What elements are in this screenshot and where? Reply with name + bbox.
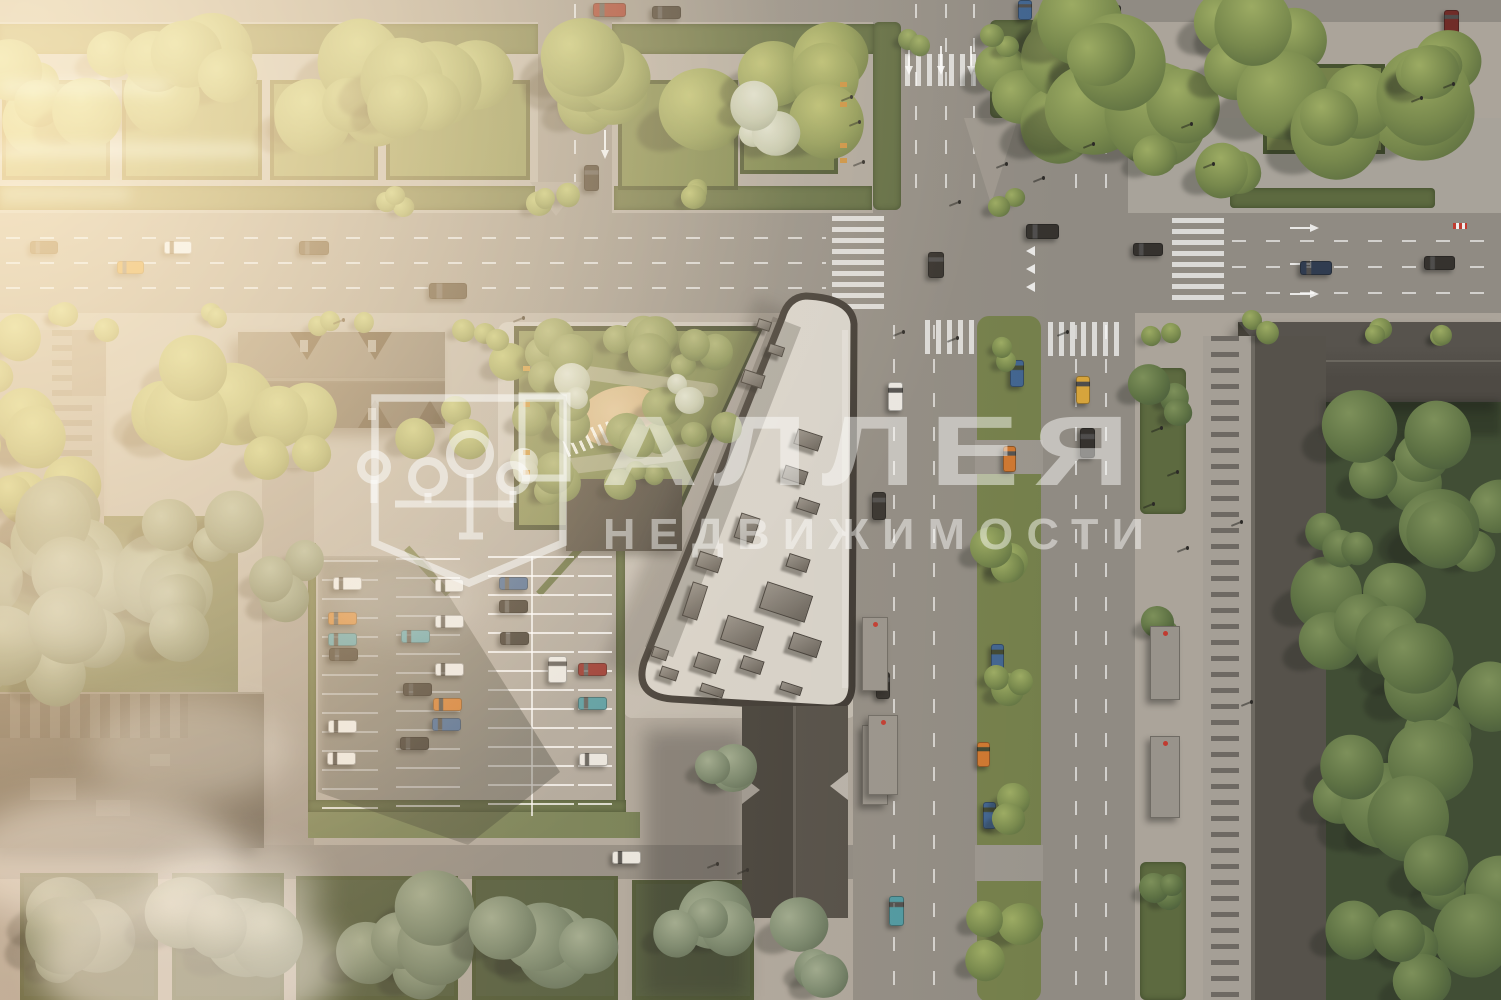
tree-shadow <box>620 467 638 482</box>
tree-shadow <box>1178 160 1227 200</box>
tree <box>15 888 109 983</box>
playground-sand <box>571 377 668 454</box>
tree-shadow <box>446 917 508 967</box>
roof-unit-shadow <box>751 322 767 336</box>
tree <box>266 373 347 455</box>
tree <box>512 459 538 484</box>
tree-shadow <box>478 336 499 353</box>
tree <box>572 53 652 131</box>
car <box>30 241 58 254</box>
tree-shadow <box>108 402 171 453</box>
tree-shadow <box>1405 879 1447 913</box>
tree <box>1419 880 1501 990</box>
car <box>1018 0 1032 20</box>
tree-shadow <box>1361 325 1382 342</box>
tree-shadow <box>768 65 831 116</box>
lower-wing-ridge <box>793 706 796 918</box>
lane-arrow <box>604 130 606 150</box>
tree-shadow <box>995 111 1063 166</box>
tree-shadow <box>714 63 778 115</box>
traffic-sign <box>1453 223 1467 229</box>
tree <box>1140 64 1226 150</box>
pedestrian-shadow <box>1443 83 1453 89</box>
tree-shadow <box>116 402 193 464</box>
roof-unit-shadow <box>654 669 675 685</box>
tree <box>472 320 499 346</box>
house-ridge <box>238 378 445 381</box>
tree <box>1318 386 1401 467</box>
pedestrian <box>1186 546 1189 550</box>
lane-arrow-head <box>1310 290 1319 298</box>
tree-shadow <box>0 425 40 470</box>
pergola-slats <box>561 417 626 457</box>
tree <box>979 23 1006 49</box>
lane-arrow <box>574 100 576 120</box>
hedge <box>616 543 625 809</box>
pedestrian-shadow <box>1057 331 1067 337</box>
left-building-windows <box>52 330 92 560</box>
tree-shadow <box>991 43 1073 109</box>
garden-plot <box>386 80 530 180</box>
tree <box>1343 594 1434 686</box>
tree <box>550 383 596 427</box>
industrial-vent <box>96 800 130 816</box>
lane-dashes <box>6 237 826 239</box>
roof-unit-shadow <box>646 650 665 665</box>
tree-shadow <box>371 932 442 989</box>
roof-unit-shadow <box>728 517 755 548</box>
tree <box>988 671 1026 709</box>
tree-shadow <box>49 570 113 622</box>
tree-shadow <box>979 554 1012 581</box>
parking-stalls <box>322 560 378 810</box>
tree-shadow <box>980 684 1011 709</box>
tree <box>1387 919 1441 972</box>
tree <box>289 432 333 475</box>
parking-tree-shadow <box>318 556 568 846</box>
tree <box>306 314 330 338</box>
car <box>983 802 996 829</box>
tree <box>1364 36 1483 156</box>
tree-shadow <box>986 793 1016 817</box>
tree-shadow <box>630 95 710 160</box>
lane-arrow-head <box>937 66 945 75</box>
tree-shadow <box>476 355 512 385</box>
tree <box>138 369 236 467</box>
shelter-marker <box>873 622 878 627</box>
parked-car <box>327 752 356 765</box>
industrial-skylights <box>0 694 188 738</box>
tree <box>462 888 544 967</box>
bus-shelter <box>868 715 898 795</box>
tree-shadow <box>386 204 406 220</box>
tree <box>687 181 709 202</box>
tree-shadow <box>0 631 11 689</box>
tree <box>16 636 94 715</box>
tree-shadow <box>0 95 42 130</box>
shelter-marker <box>1163 631 1168 636</box>
tree <box>277 532 331 587</box>
lane-arrow-head <box>601 150 609 159</box>
tree <box>1387 423 1457 491</box>
tree-shadow <box>15 545 91 606</box>
tree <box>1211 146 1265 199</box>
tree-shadow <box>501 412 533 438</box>
yield-triangle <box>1026 264 1035 274</box>
tree <box>1278 545 1375 643</box>
lower-wing-gable <box>742 776 760 804</box>
tree-shadow <box>558 394 578 410</box>
roof-unit <box>788 632 822 658</box>
pedestrian <box>1152 502 1155 506</box>
tree <box>527 361 563 396</box>
tree-shadow <box>520 331 558 362</box>
tree <box>1032 0 1129 71</box>
tree <box>1460 470 1501 543</box>
lawn <box>1322 398 1501 1000</box>
tree <box>705 742 764 799</box>
tree <box>672 384 706 417</box>
median-gap <box>975 845 1043 881</box>
tree-shadow <box>382 430 419 460</box>
hedge <box>820 360 854 408</box>
tree-shadow <box>201 314 219 329</box>
pedestrian <box>522 316 525 320</box>
tree-shadow <box>71 47 116 84</box>
tree-shadow <box>528 476 565 506</box>
tree-shadow <box>633 432 662 456</box>
tree <box>994 33 1021 60</box>
tree-shadow <box>166 388 242 449</box>
tree-shadow <box>83 562 166 629</box>
tree <box>242 549 301 609</box>
tree <box>1056 10 1146 98</box>
industrial-building <box>0 692 264 848</box>
car <box>889 896 904 926</box>
tree <box>641 462 667 488</box>
tree-shadow <box>593 426 630 456</box>
tree <box>1138 872 1170 904</box>
tree <box>601 408 651 457</box>
tree <box>1386 946 1458 1000</box>
pedestrian <box>1160 426 1163 430</box>
tree <box>1399 494 1480 575</box>
tree <box>391 902 480 991</box>
tree <box>1344 447 1404 505</box>
tree-shadow <box>303 95 353 135</box>
tree <box>781 33 869 122</box>
tree-shadow <box>902 41 921 57</box>
tree <box>1405 19 1491 103</box>
pedestrian <box>956 336 959 340</box>
tree-shadow <box>669 338 698 361</box>
lane-dashes <box>973 4 975 204</box>
lane-dashes <box>1232 266 1496 268</box>
hedge <box>536 546 583 597</box>
parked-car <box>499 577 528 590</box>
tree-shadow <box>1121 93 1190 148</box>
tree <box>1363 324 1386 346</box>
tree <box>189 38 265 112</box>
flare-streak <box>0 190 130 198</box>
parked-car <box>400 737 429 750</box>
roof-unit-shadow <box>783 636 817 662</box>
parking-stall-line <box>531 556 533 816</box>
tree <box>395 68 465 136</box>
tree <box>1293 606 1366 677</box>
tree <box>1010 78 1104 173</box>
tree-shadow <box>0 921 69 977</box>
roof-unit-shadow <box>780 557 805 577</box>
tree <box>1431 324 1454 347</box>
tree <box>302 5 418 123</box>
lane-dashes <box>893 325 895 990</box>
tree-shadow <box>1382 63 1436 106</box>
tree-shadow <box>983 917 1025 951</box>
lane-arrow <box>970 46 972 66</box>
roof-unit <box>682 581 708 620</box>
tree-shadow <box>1008 7 1088 71</box>
tree-shadow <box>1383 522 1445 572</box>
roof-unit-shadow <box>735 373 760 393</box>
zebra-crossing <box>551 54 611 86</box>
tree <box>625 460 647 481</box>
tree <box>46 303 70 327</box>
tree <box>0 356 17 397</box>
tree <box>0 637 10 693</box>
tree <box>344 23 459 139</box>
tree-shadow <box>516 372 549 398</box>
roof-unit <box>767 343 785 357</box>
tree-shadow <box>0 502 66 563</box>
tree-shadow <box>370 198 388 213</box>
lane-dashes <box>1232 292 1496 294</box>
gabled-house <box>238 332 445 428</box>
roof-unit <box>785 553 810 573</box>
tree-shadow <box>1365 472 1418 515</box>
tree <box>1061 4 1177 120</box>
tree <box>1393 35 1468 108</box>
roof-unit-shadow <box>715 619 759 655</box>
pedestrian-shadow <box>1181 123 1191 129</box>
tree <box>329 63 423 157</box>
ground-patch <box>853 313 1135 373</box>
tree-shadow <box>1358 332 1376 347</box>
tree-shadow <box>435 432 472 462</box>
ground-patch <box>262 468 314 848</box>
tree <box>52 892 141 978</box>
tree-shadow <box>373 959 426 1000</box>
tree-shadow <box>7 559 73 613</box>
tree-shadow <box>1266 580 1332 634</box>
tree <box>990 800 1028 837</box>
tree <box>667 349 699 380</box>
grass-verge <box>308 812 640 838</box>
tree <box>1007 0 1124 113</box>
tree-shadow <box>1294 789 1345 830</box>
tree <box>996 782 1031 816</box>
tree <box>1371 908 1426 963</box>
tree-shadow <box>525 487 550 507</box>
bench <box>840 102 847 107</box>
zebra-crossing <box>1172 218 1224 300</box>
tree-shadow <box>332 64 408 126</box>
tree <box>1140 325 1163 348</box>
tree-shadow <box>1381 66 1421 98</box>
avenue-median <box>977 316 1041 1000</box>
tree <box>1361 561 1428 627</box>
tree-shadow <box>1436 544 1477 577</box>
tree-shadow <box>44 310 68 329</box>
tree <box>1314 729 1389 805</box>
tree-shadow <box>1155 408 1181 429</box>
tree-shadow <box>1374 973 1427 1000</box>
car <box>1010 360 1024 387</box>
tree-shadow <box>1205 80 1291 149</box>
pedestrian-shadow <box>947 337 957 343</box>
tree <box>510 448 538 476</box>
parked-car <box>578 697 607 710</box>
tree-shadow <box>501 457 527 478</box>
tree-shadow <box>234 570 275 603</box>
pedestrian <box>1212 162 1215 166</box>
tree <box>731 33 815 115</box>
industrial-vent <box>150 754 170 766</box>
facade-windows <box>1211 336 1239 1000</box>
roof-garden-border <box>514 326 768 530</box>
hedge <box>990 20 1046 118</box>
tree-shadow <box>1306 919 1358 961</box>
parking-stalls <box>396 558 460 814</box>
tree <box>795 948 853 1000</box>
roof-unit <box>781 465 808 486</box>
tree <box>111 46 211 147</box>
tree <box>3 410 69 474</box>
tree <box>274 78 349 151</box>
car <box>429 283 467 299</box>
tree-shadow <box>1333 468 1378 504</box>
pedestrian-shadow <box>1083 143 1093 149</box>
roof-unit <box>793 428 823 451</box>
tree-shadow <box>537 93 591 136</box>
tree <box>983 664 1010 690</box>
tree <box>554 914 621 979</box>
tree-shadow <box>1408 59 1445 89</box>
tree-shadow <box>229 450 271 484</box>
pedestrian <box>716 862 719 866</box>
car <box>977 742 990 767</box>
tree <box>745 104 806 164</box>
tree <box>763 889 836 960</box>
tree <box>992 348 1019 376</box>
tree <box>679 182 709 211</box>
tree-shadow <box>177 924 251 984</box>
tree <box>501 893 609 1000</box>
tree <box>531 315 579 361</box>
tree-shadow <box>683 918 733 959</box>
tree <box>523 187 556 219</box>
hedge <box>308 543 316 809</box>
tree-shadow <box>1248 328 1269 345</box>
pedestrian <box>1066 330 1069 334</box>
tree <box>1156 618 1181 643</box>
tree <box>1351 762 1464 876</box>
roof-garden <box>519 331 763 525</box>
tree-shadow <box>490 932 562 990</box>
garden-path <box>529 358 719 398</box>
tree-shadow <box>653 904 721 959</box>
tree <box>510 399 549 438</box>
tree <box>694 749 731 785</box>
tree <box>177 885 257 966</box>
roof-unit-shadow <box>688 656 716 679</box>
roof-unit <box>659 665 680 681</box>
garden-path <box>544 441 715 478</box>
tree-shadow <box>20 954 60 986</box>
tree-shadow <box>1342 582 1400 629</box>
parked-car <box>435 579 464 592</box>
tree <box>696 896 761 961</box>
tree-shadow <box>956 540 994 571</box>
tree-shadow <box>1201 165 1243 199</box>
tree <box>539 461 583 505</box>
tree <box>318 74 379 135</box>
tree-shadow <box>178 66 232 110</box>
tree-shadow <box>628 400 666 430</box>
tree <box>148 602 210 663</box>
tree <box>1367 315 1394 341</box>
pedestrian <box>1250 700 1253 704</box>
lane-dashes <box>1232 240 1496 242</box>
tree-shadow <box>951 953 988 983</box>
tree <box>986 194 1012 219</box>
tree <box>737 118 769 149</box>
pedestrian <box>858 120 861 124</box>
bus-shelter <box>1150 626 1180 700</box>
courtyard-shadow <box>1322 400 1501 436</box>
tree <box>389 193 417 221</box>
tree <box>1162 396 1196 429</box>
parked-car <box>328 633 357 646</box>
roof-unit <box>651 646 670 661</box>
tree <box>1305 762 1377 832</box>
tree <box>1313 55 1406 149</box>
tree-shadow <box>764 107 833 163</box>
tree-shadow <box>975 672 998 691</box>
tree-shadow <box>543 400 575 426</box>
tree <box>1370 615 1461 703</box>
tree-shadow <box>0 433 41 475</box>
tree-shadow <box>378 193 396 208</box>
tree <box>0 464 58 532</box>
tree-shadow <box>1005 20 1075 77</box>
tree-shadow <box>1130 617 1161 642</box>
lane-dashes <box>1075 4 1077 206</box>
pedestrian <box>342 318 345 322</box>
tree <box>708 409 746 447</box>
tree <box>383 184 408 208</box>
tree-shadow <box>1314 613 1369 658</box>
tree-shadow <box>136 356 199 407</box>
tree <box>62 607 125 669</box>
tree <box>1387 476 1490 577</box>
garden-plot <box>172 873 284 1000</box>
tree-shadow <box>0 504 60 561</box>
pedestrian <box>1005 162 1008 166</box>
lane-arrow-head <box>1310 260 1319 268</box>
tree <box>548 332 595 378</box>
bus-shelter <box>862 617 888 691</box>
